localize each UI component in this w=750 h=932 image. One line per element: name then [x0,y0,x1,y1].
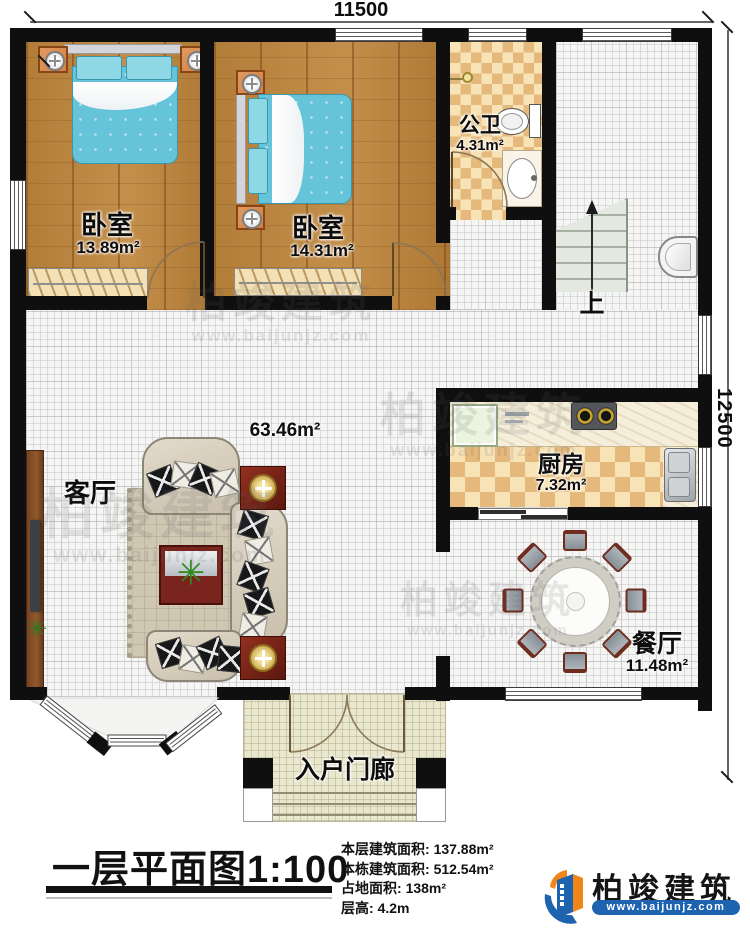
bed2-nightstand-bottom [236,205,265,230]
porch-pillar-base-left [243,788,273,822]
wall [527,28,582,42]
sliding-door [478,508,568,520]
counter-item [505,412,529,416]
bedroom1-area: 13.89m² [76,239,139,257]
sliding-door-panel [521,515,567,519]
porch-label: 入户门廊 [295,757,395,783]
bedroom2-label: 卧室 [292,215,344,242]
bedroom2-door [390,240,450,298]
wall [10,28,26,180]
burner-icon [597,407,615,425]
info-value: 137.88m² [434,841,494,857]
porch-pillar-left [243,758,273,788]
window [698,447,712,507]
wall [405,687,505,700]
plan-title-text: 一层平面图 [52,849,247,891]
window [505,687,642,701]
stove-icon [571,402,617,430]
dining-chair [563,530,587,551]
water-heater-icon [658,236,698,278]
kitchen-sink-icon [664,448,696,502]
dimension-line-top [30,21,712,23]
info-value: 512.54m² [434,861,494,877]
info-label: 层高: [341,900,374,916]
window [335,28,423,42]
fridge-icon [452,404,498,447]
wall [436,520,450,552]
bed2-headboard [236,92,246,204]
plan-title-scale: 1:100 [247,849,349,891]
dimension-top: 11500 [334,0,389,21]
dining-table-center [566,592,585,611]
tv-icon [30,520,40,612]
faucet-icon [531,175,537,181]
corridor-floor [450,220,556,310]
table-lamp-icon [249,474,277,502]
dining-chair [626,589,647,613]
bedroom2-area: 14.31m² [290,242,353,260]
info-label: 本栋建筑面积: [341,861,430,877]
logo-icon [541,862,593,924]
wall [698,375,712,447]
plan-title: 一层平面图1:100 [52,838,349,893]
wall [698,507,712,711]
side-table-top [240,466,286,510]
porch-pillar-base-right [416,788,446,822]
info-line: 层高: 4.2m [341,899,494,919]
bay-window [8,686,244,762]
wall [10,250,26,687]
info-line: 本栋建筑面积: 512.54m² [341,860,494,880]
info-line: 本层建筑面积: 137.88m² [341,840,494,860]
wall [10,28,335,42]
info-line: 占地面积: 138m² [341,879,494,899]
lamp-icon [45,51,65,71]
bedroom1-door [146,238,210,300]
wall [450,507,478,520]
window [10,180,26,250]
plant-icon: ✳ [27,618,47,642]
table-lamp-icon [249,644,277,672]
stairs-arrow-icon [586,200,598,214]
lamp-icon [242,209,262,229]
bathroom-area: 4.31m² [456,138,504,154]
living-label: 客厅 [64,480,116,507]
bed2-pillow [248,98,268,144]
window [468,28,527,42]
counter-item [505,420,523,423]
porch-step-line [273,814,416,816]
wall-lamp-icon [462,72,473,83]
bed2-sheet-fold [272,95,304,203]
wall [436,42,450,243]
living-area: 63.46m² [250,421,321,441]
bed1-headboard [64,44,182,54]
wall [506,207,556,220]
bed1-pillow [126,56,172,80]
bedroom1-label: 卧室 [81,212,133,239]
bathroom-door [448,150,510,210]
dining-chair [563,652,587,673]
porch-step-line [273,803,416,805]
window [698,315,712,375]
wall [26,296,147,310]
bedroom1-wardrobe [28,268,148,297]
burner-icon [576,407,594,425]
info-value: 138m² [406,880,446,896]
wall [542,42,556,310]
wall [698,28,712,315]
porch-pillar-right [416,758,446,788]
info-label: 占地面积: [341,880,402,896]
dining-area: 11.48m² [626,657,688,675]
bed1 [72,66,178,164]
bedroom2-wardrobe [234,268,362,296]
stairs-arrow-line [591,212,593,290]
title-underline-thick [46,886,332,893]
info-label: 本层建筑面积: [341,841,430,857]
sink-basin [668,477,690,497]
side-table-bottom [240,636,286,680]
wall [436,656,450,701]
porch-step-line [273,792,416,794]
dimension-right: 12500 [712,388,735,449]
building-info: 本层建筑面积: 137.88m² 本栋建筑面积: 512.54m² 占地面积: … [341,840,494,918]
sink-basin [668,452,690,473]
dining-label: 餐厅 [632,631,682,657]
dining-chair [503,589,524,613]
wall [436,388,450,520]
plant-pot: ✳ [27,614,45,654]
water-heater-door [665,243,691,271]
info-value: 4.2m [378,900,410,916]
wall [436,296,450,310]
stairs-up-label: 上 [579,291,604,317]
sliding-door-panel [480,510,526,514]
wall [568,507,698,520]
window [582,28,672,42]
kitchen-area: 7.32m² [536,478,587,495]
lamp-icon [242,74,262,94]
bathroom-label: 公卫 [459,115,501,137]
bed2-pillow [248,148,268,194]
toilet-tank [529,104,541,138]
wall [436,388,698,402]
bed1-pillow [76,56,122,80]
wall [205,296,392,310]
sofa-cushion [210,468,241,499]
kitchen-label: 厨房 [538,452,584,476]
toilet-bowl [501,113,523,130]
wall [423,28,468,42]
floor-plan-page: ✳ ✳ [0,0,750,932]
logo-url: www.baijunjz.com [592,900,740,915]
entrance-double-door [286,693,408,759]
coffee-table: ✳ [159,545,223,605]
bed2-nightstand-top [236,70,265,95]
wall [642,687,712,700]
title-underline-thin [46,897,332,899]
plant-icon: ✳ [177,557,206,591]
